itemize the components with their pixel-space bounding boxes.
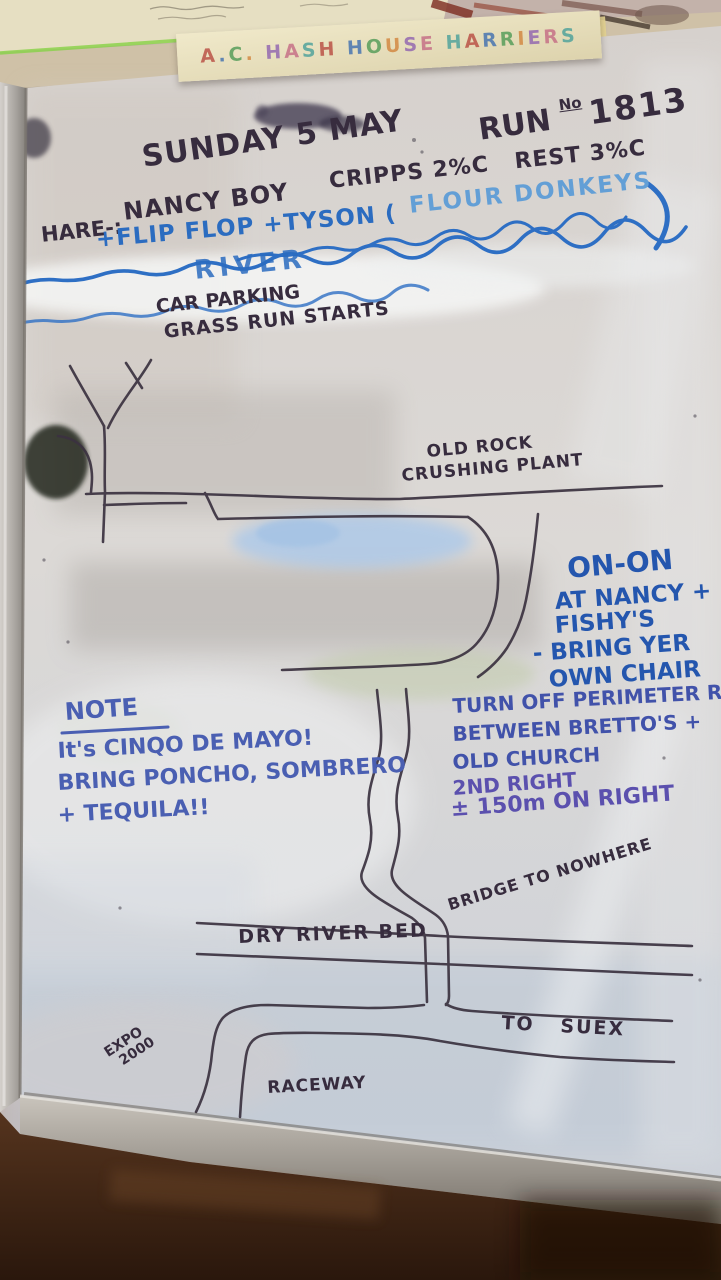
counter-dark-corner: [520, 1200, 721, 1280]
whiteboard-photo: A.C. HASH HOUSE HARRIERS SUNDAY 5 MAY RU…: [0, 0, 721, 1280]
dark-foliage-blob: [24, 425, 88, 499]
note-title: NOTE: [64, 695, 139, 725]
wall-smudge: [635, 5, 689, 25]
club-banner-text: A.C. HASH HOUSE HARRIERS: [200, 25, 579, 68]
blue-sky-reflection-2: [256, 519, 340, 547]
tint-reflection-band-2: [70, 562, 540, 650]
tint-bottom-left: [0, 858, 255, 980]
run-number-sup: No: [557, 93, 582, 114]
eraser-smudge-dot: [256, 105, 268, 117]
frame-left-highlight: [4, 86, 6, 1106]
